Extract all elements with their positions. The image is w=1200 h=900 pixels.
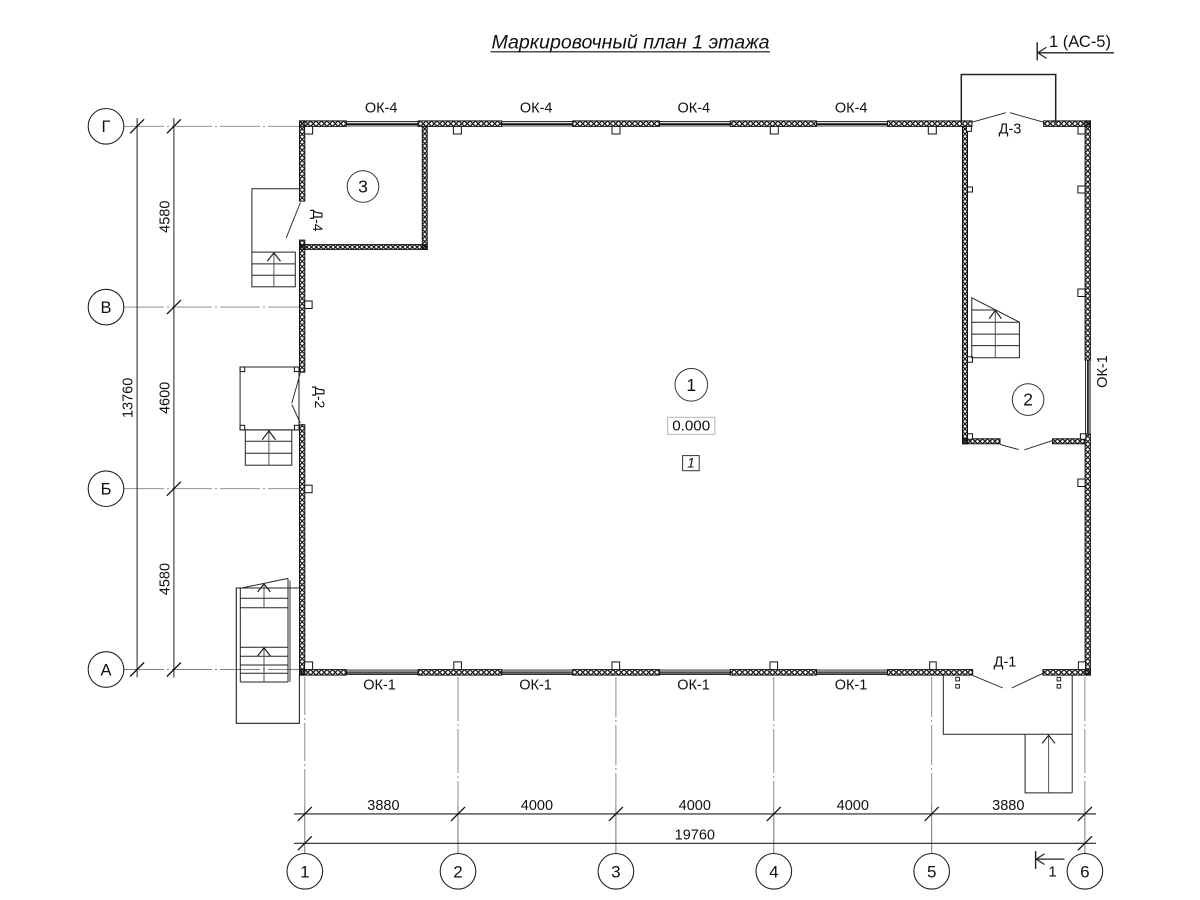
svg-text:ОК-4: ОК-4 [520,100,553,116]
svg-text:1: 1 [687,455,695,470]
svg-text:ОК-1: ОК-1 [1095,355,1111,388]
svg-text:4600: 4600 [157,382,173,414]
svg-text:ОК-1: ОК-1 [519,678,552,694]
svg-text:2: 2 [453,862,462,881]
svg-text:Д-3: Д-3 [999,122,1022,138]
svg-text:3880: 3880 [992,798,1024,814]
svg-text:ОК-1: ОК-1 [835,678,868,694]
svg-text:2: 2 [1023,390,1033,410]
svg-text:Д-4: Д-4 [310,210,326,232]
svg-text:6: 6 [1080,862,1089,881]
svg-text:4: 4 [769,862,778,881]
svg-text:13760: 13760 [121,378,137,418]
svg-text:0.000: 0.000 [672,418,710,435]
svg-text:ОК-4: ОК-4 [677,100,710,116]
svg-text:1: 1 [300,862,309,881]
svg-text:Д-1: Д-1 [994,654,1017,670]
svg-text:3: 3 [358,177,368,197]
svg-text:ОК-4: ОК-4 [365,100,398,116]
svg-text:Д-2: Д-2 [312,386,328,408]
svg-text:4000: 4000 [837,798,869,814]
svg-text:В: В [100,299,111,317]
svg-text:ОК-1: ОК-1 [363,678,396,694]
svg-text:4000: 4000 [521,798,553,814]
svg-text:19760: 19760 [675,828,715,844]
svg-text:Маркировочный план 1 этажа: Маркировочный план 1 этажа [491,32,769,54]
svg-text:Г: Г [102,118,111,136]
svg-text:А: А [100,661,111,679]
svg-text:1: 1 [686,375,696,395]
svg-text:1 (АС-5): 1 (АС-5) [1049,33,1111,51]
svg-text:4580: 4580 [157,563,173,595]
svg-text:ОК-4: ОК-4 [835,100,868,116]
svg-text:ОК-1: ОК-1 [677,678,710,694]
svg-text:Б: Б [101,481,112,499]
svg-text:3: 3 [611,862,620,881]
svg-text:4580: 4580 [157,201,173,233]
svg-text:4000: 4000 [679,798,711,814]
svg-text:3880: 3880 [367,798,399,814]
svg-text:1: 1 [1048,864,1056,881]
svg-text:5: 5 [927,862,936,881]
